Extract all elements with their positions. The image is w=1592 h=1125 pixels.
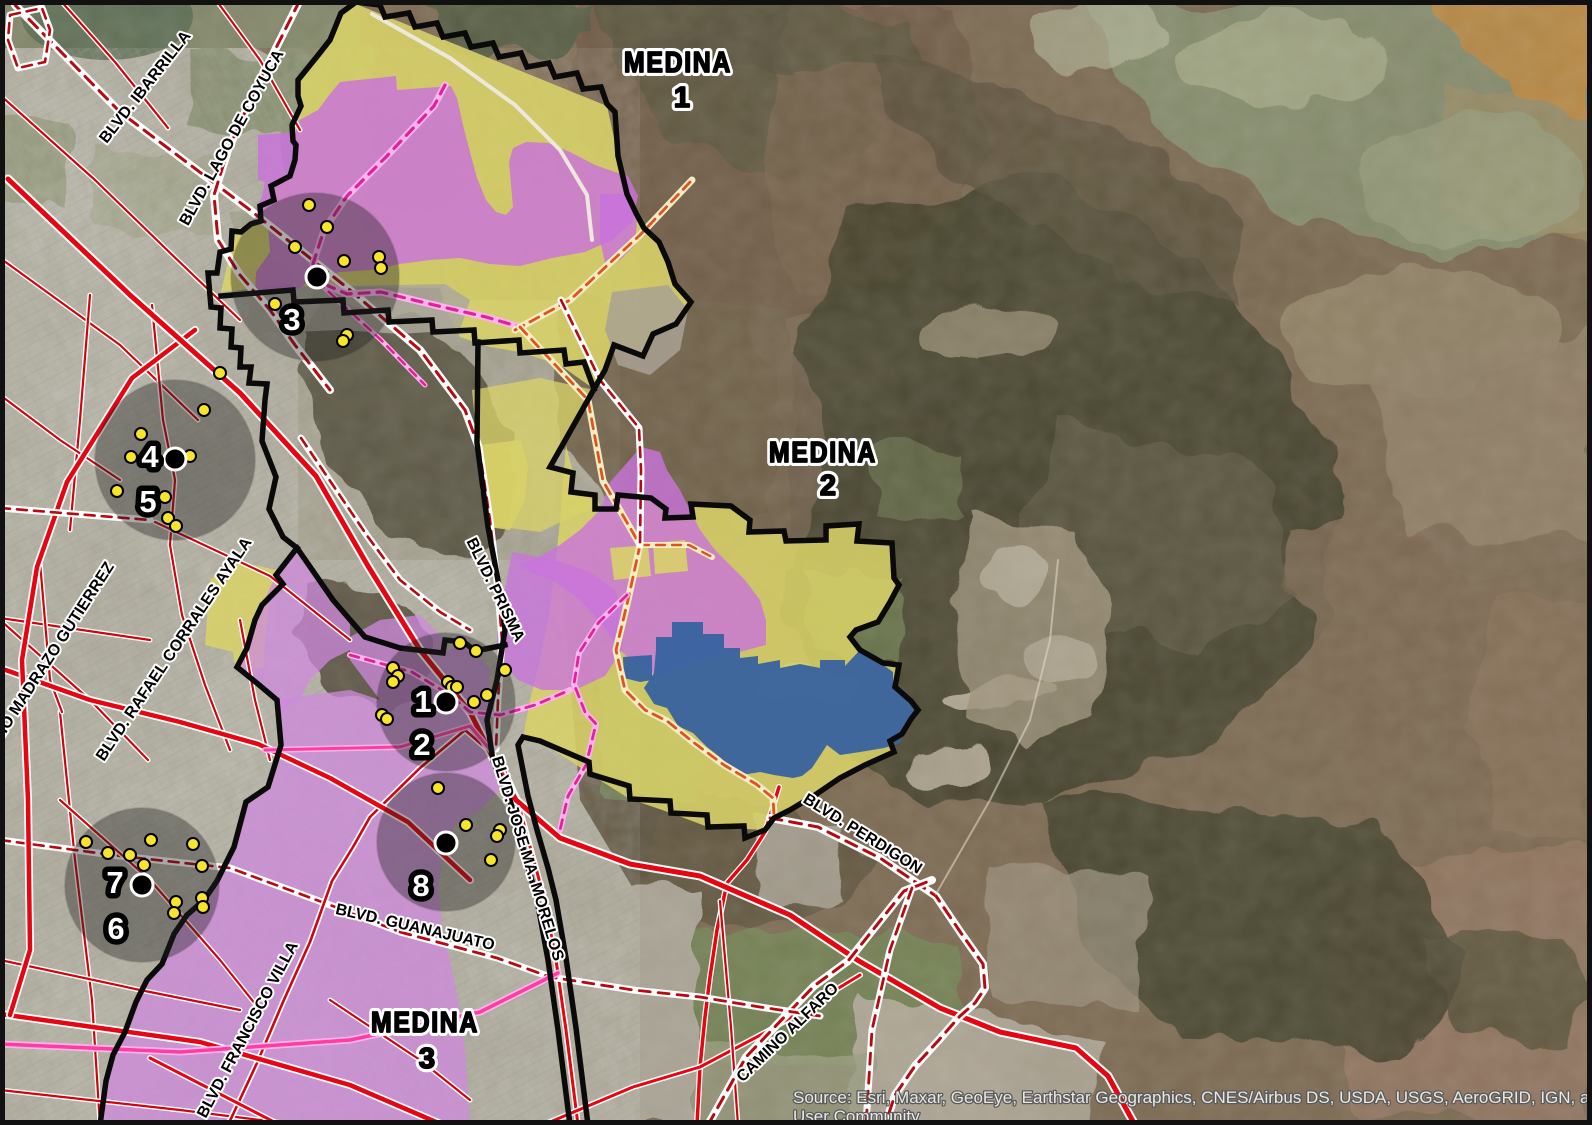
svg-text:4: 4 <box>141 439 159 474</box>
svg-text:3: 3 <box>283 302 300 337</box>
svg-text:7: 7 <box>106 865 123 900</box>
svg-text:2: 2 <box>413 727 430 762</box>
svg-text:MEDINA: MEDINA <box>769 437 877 469</box>
svg-text:2: 2 <box>820 470 838 502</box>
svg-text:MEDINA: MEDINA <box>371 1007 479 1039</box>
svg-text:3: 3 <box>419 1043 437 1075</box>
svg-text:1: 1 <box>414 684 431 719</box>
svg-text:Source: Esri, Maxar, GeoEye, E: Source: Esri, Maxar, GeoEye, Earthstar G… <box>793 1088 1592 1107</box>
svg-text:1: 1 <box>674 82 692 114</box>
svg-text:MEDINA: MEDINA <box>624 47 732 79</box>
svg-text:5: 5 <box>139 484 156 519</box>
svg-text:8: 8 <box>412 868 429 903</box>
svg-text:6: 6 <box>107 911 124 946</box>
